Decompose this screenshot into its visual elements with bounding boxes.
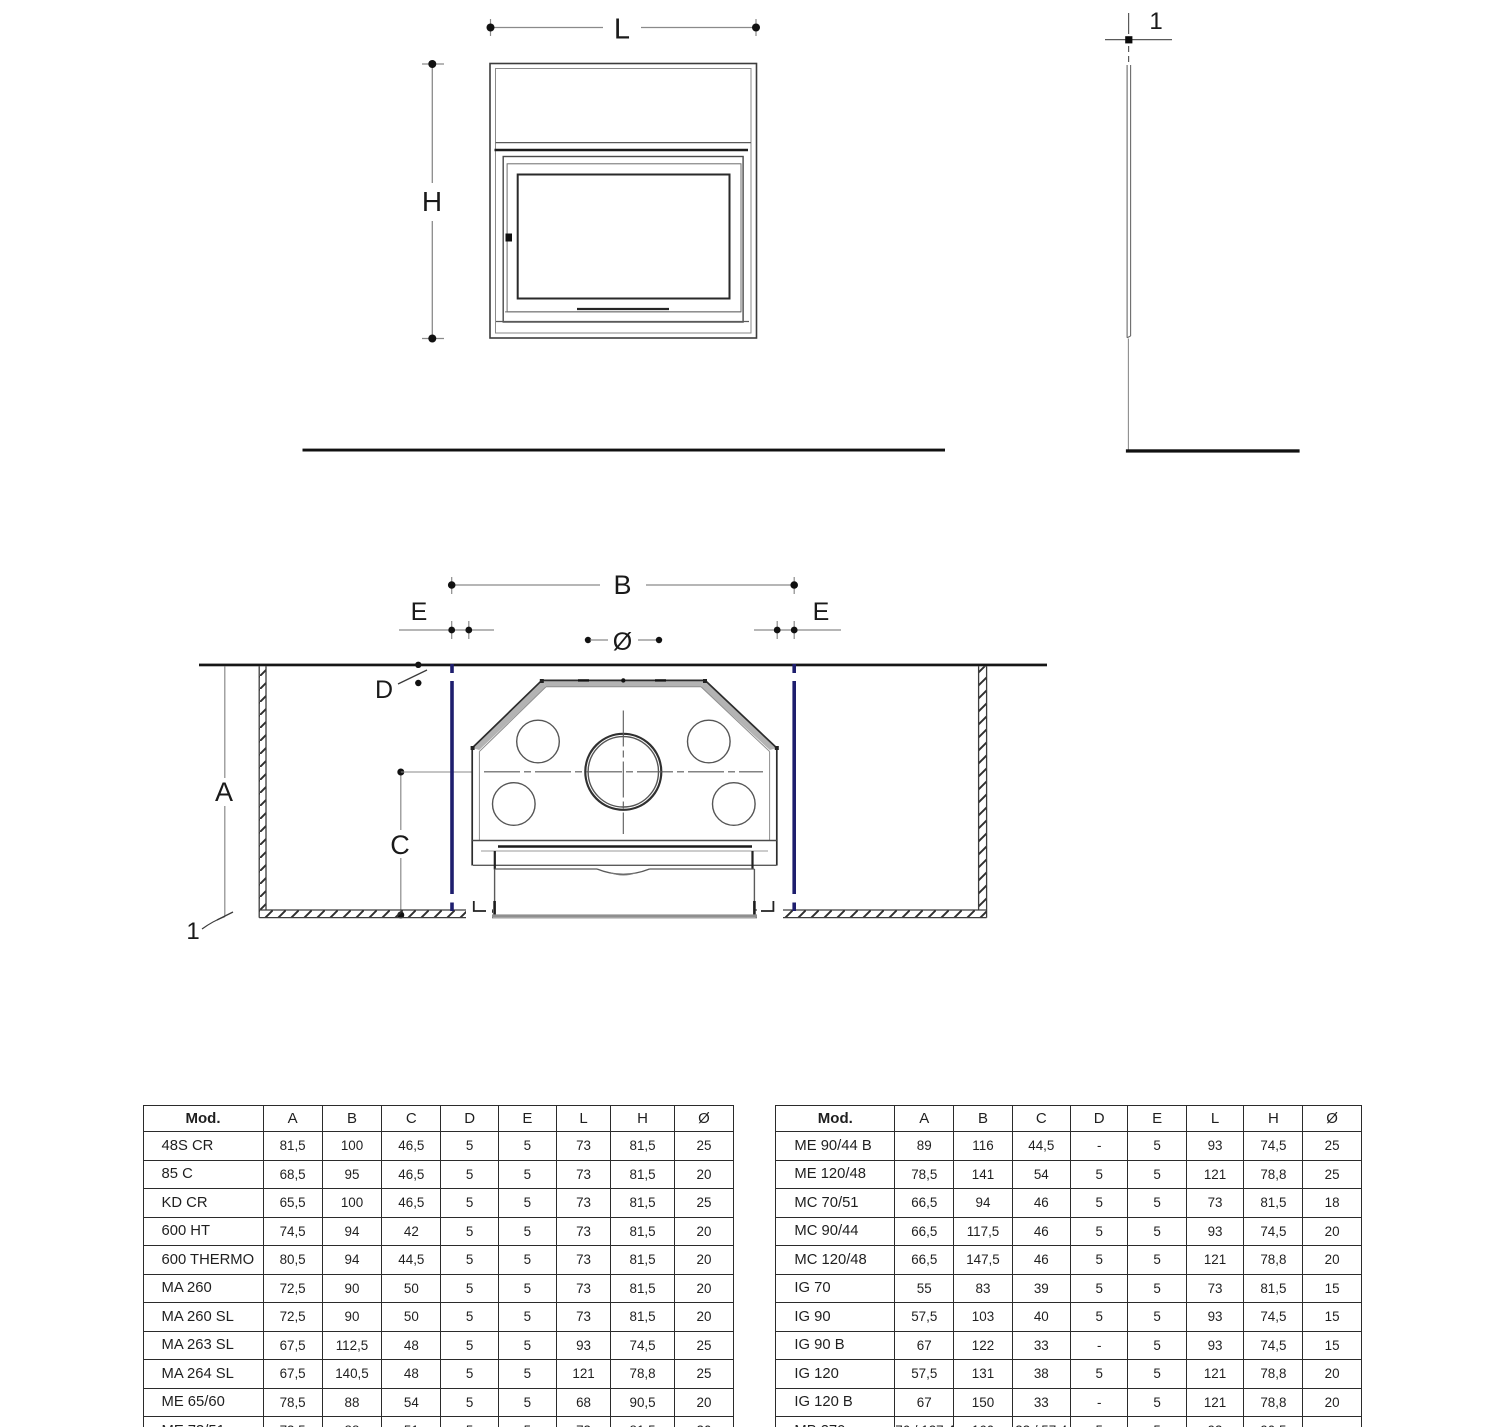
svg-text:Ø: Ø	[613, 628, 632, 656]
svg-text:1: 1	[186, 918, 199, 945]
svg-text:E: E	[411, 598, 428, 626]
svg-text:B: B	[613, 570, 631, 600]
svg-text:D: D	[375, 676, 393, 704]
svg-text:E: E	[813, 598, 830, 626]
svg-text:1: 1	[1149, 8, 1162, 35]
svg-text:H: H	[422, 186, 442, 217]
svg-text:L: L	[614, 14, 630, 46]
svg-text:A: A	[215, 777, 233, 807]
svg-text:C: C	[390, 830, 410, 860]
